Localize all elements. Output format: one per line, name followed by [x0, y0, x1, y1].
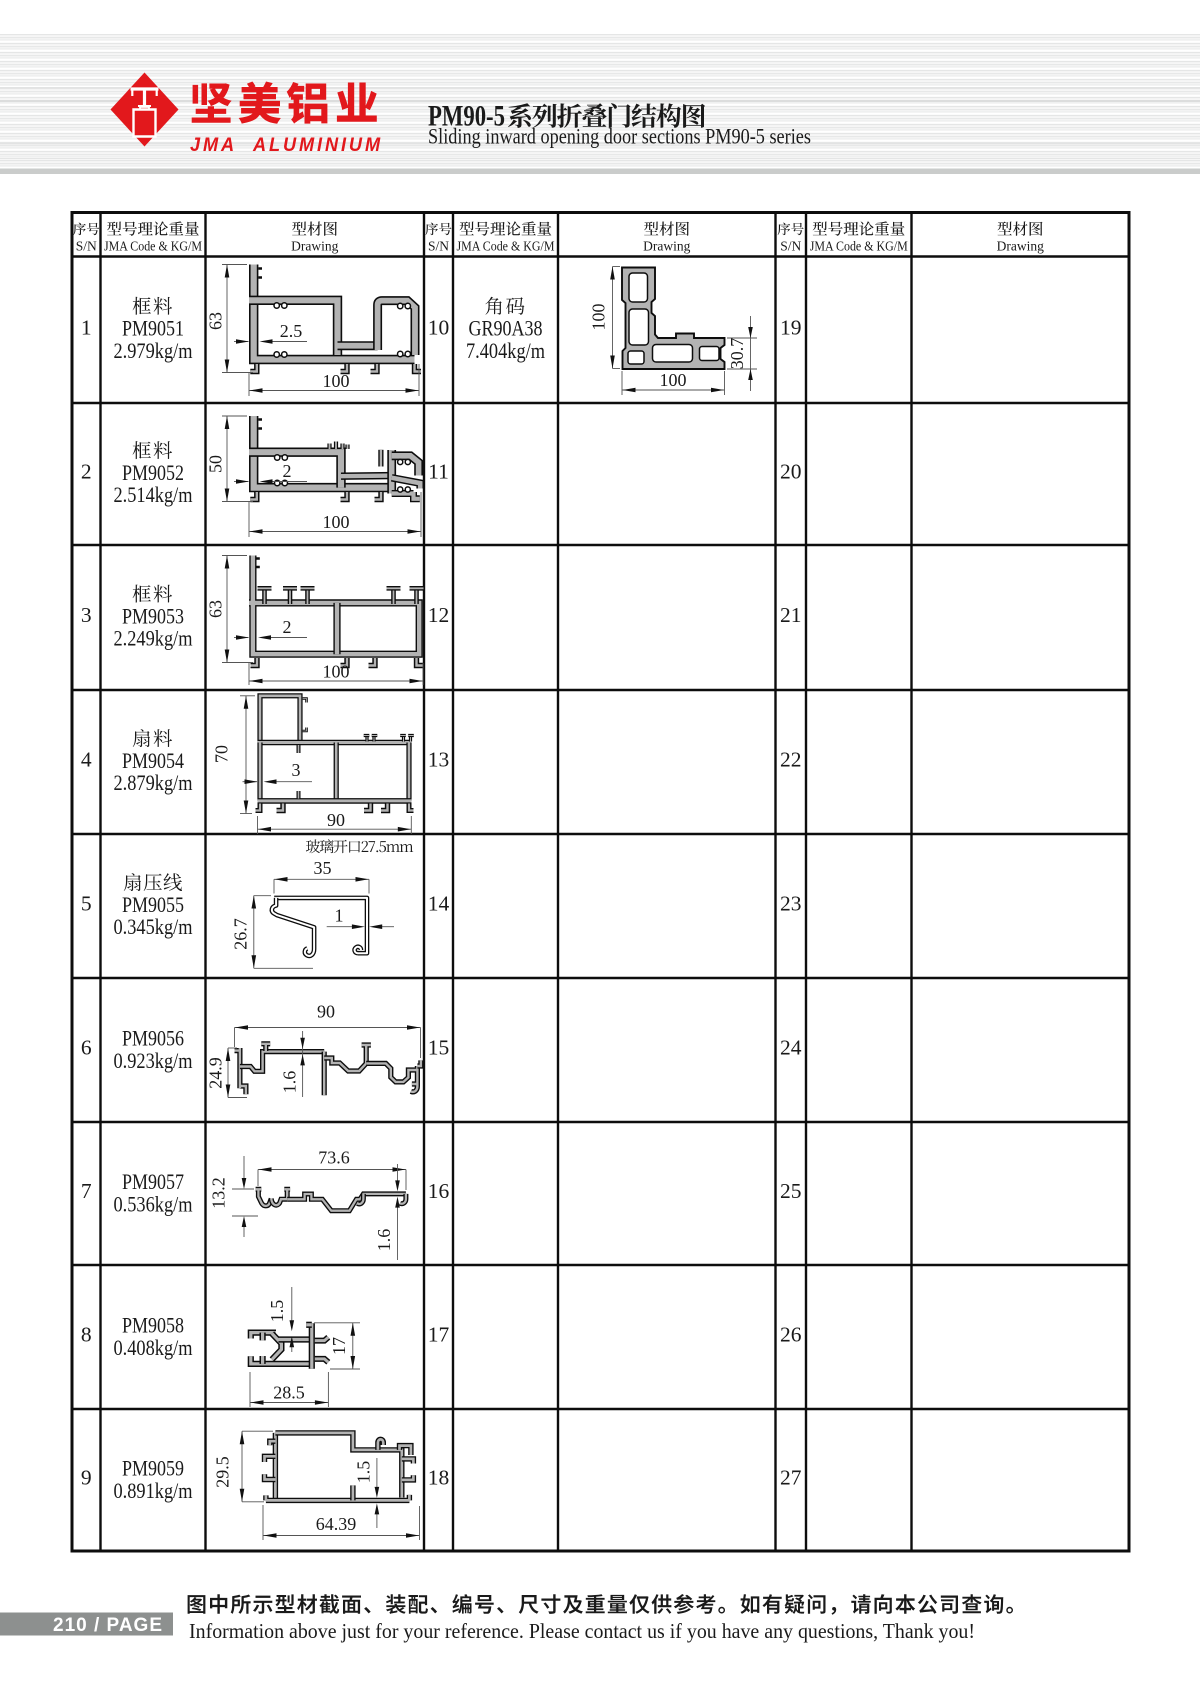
svg-text:90: 90 [317, 1002, 335, 1022]
svg-text:2: 2 [283, 617, 292, 637]
svg-text:9: 9 [81, 1466, 92, 1490]
svg-text:PM9051: PM9051 [122, 316, 184, 341]
svg-text:30.7: 30.7 [727, 338, 747, 370]
svg-text:S/N: S/N [780, 239, 801, 254]
svg-text:73.6: 73.6 [318, 1148, 350, 1168]
svg-text:70: 70 [212, 745, 232, 763]
svg-text:210 / PAGE: 210 / PAGE [53, 1615, 163, 1636]
svg-text:11: 11 [428, 460, 449, 484]
svg-text:1.6: 1.6 [374, 1229, 394, 1252]
svg-text:2.249kg/m: 2.249kg/m [114, 626, 193, 651]
svg-text:13: 13 [428, 748, 450, 772]
svg-text:6: 6 [81, 1036, 92, 1060]
svg-text:S/N: S/N [76, 239, 97, 254]
svg-text:19: 19 [780, 315, 802, 339]
svg-text:16: 16 [428, 1179, 450, 1203]
svg-text:15: 15 [428, 1036, 450, 1060]
svg-text:100: 100 [323, 371, 350, 391]
svg-text:100: 100 [323, 512, 350, 532]
svg-text:Information above just for you: Information above just for your referenc… [189, 1619, 975, 1643]
svg-text:1.5: 1.5 [354, 1461, 374, 1484]
svg-text:10: 10 [428, 315, 450, 339]
svg-text:2.514kg/m: 2.514kg/m [114, 482, 193, 507]
svg-text:50: 50 [206, 455, 226, 473]
svg-text:3: 3 [292, 760, 301, 780]
svg-text:JMA Code & KG/M: JMA Code & KG/M [457, 239, 555, 254]
svg-text:S/N: S/N [428, 239, 449, 254]
svg-text:25: 25 [780, 1179, 802, 1203]
svg-text:PM9059: PM9059 [122, 1456, 184, 1481]
svg-text:63: 63 [206, 312, 226, 330]
svg-text:100: 100 [660, 370, 687, 390]
svg-text:26: 26 [780, 1323, 802, 1347]
svg-text:26.7: 26.7 [231, 918, 251, 950]
svg-text:23: 23 [780, 892, 802, 916]
svg-text:7.404kg/m: 7.404kg/m [466, 338, 545, 363]
svg-text:PM9057: PM9057 [122, 1169, 184, 1194]
svg-text:21: 21 [780, 603, 802, 627]
svg-text:5: 5 [81, 892, 92, 916]
svg-text:Drawing: Drawing [643, 239, 690, 254]
svg-text:0.891kg/m: 0.891kg/m [114, 1478, 193, 1503]
svg-text:100: 100 [589, 304, 609, 331]
svg-text:1: 1 [335, 906, 344, 926]
svg-text:JMA Code & KG/M: JMA Code & KG/M [104, 239, 202, 254]
svg-text:18: 18 [428, 1466, 450, 1490]
svg-text:12: 12 [428, 603, 450, 627]
svg-text:28.5: 28.5 [273, 1383, 305, 1403]
svg-text:27: 27 [780, 1466, 802, 1490]
svg-text:0.923kg/m: 0.923kg/m [114, 1048, 193, 1073]
svg-text:17: 17 [428, 1323, 450, 1347]
svg-text:63: 63 [206, 600, 226, 618]
svg-text:13.2: 13.2 [209, 1177, 229, 1209]
svg-text:35: 35 [314, 858, 332, 878]
svg-text:GR90A38: GR90A38 [469, 316, 543, 341]
svg-text:7: 7 [81, 1179, 92, 1203]
svg-text:Drawing: Drawing [291, 239, 338, 254]
svg-text:0.536kg/m: 0.536kg/m [114, 1192, 193, 1217]
svg-text:PM9056: PM9056 [122, 1026, 184, 1051]
svg-text:0.408kg/m: 0.408kg/m [114, 1335, 193, 1360]
svg-text:Sliding inward opening door se: Sliding inward opening door sections PM9… [428, 124, 811, 149]
svg-text:PM9053: PM9053 [122, 603, 184, 628]
svg-text:2: 2 [283, 461, 292, 481]
svg-text:64.39: 64.39 [316, 1514, 357, 1534]
svg-text:PM9058: PM9058 [122, 1313, 184, 1338]
svg-text:PM9052: PM9052 [122, 460, 184, 485]
svg-text:4: 4 [81, 748, 92, 772]
svg-text:1.5: 1.5 [267, 1300, 287, 1323]
svg-text:0.345kg/m: 0.345kg/m [114, 914, 193, 939]
svg-text:2.879kg/m: 2.879kg/m [114, 770, 193, 795]
svg-text:3: 3 [81, 603, 92, 627]
svg-text:20: 20 [780, 460, 802, 484]
svg-text:2: 2 [81, 460, 92, 484]
svg-text:22: 22 [780, 748, 802, 772]
svg-text:24: 24 [780, 1036, 802, 1060]
svg-text:2.979kg/m: 2.979kg/m [114, 338, 193, 363]
svg-text:Drawing: Drawing [997, 239, 1044, 254]
svg-text:2.5: 2.5 [280, 321, 303, 341]
svg-text:PM9054: PM9054 [122, 748, 184, 773]
svg-text:1.6: 1.6 [280, 1071, 300, 1094]
svg-text:29.5: 29.5 [213, 1456, 233, 1488]
svg-text:JMA ALUMINIUM: JMA ALUMINIUM [190, 134, 383, 156]
svg-text:14: 14 [428, 892, 450, 916]
svg-text:100: 100 [323, 662, 350, 682]
svg-text:1: 1 [81, 315, 92, 339]
svg-text:17: 17 [329, 1337, 349, 1355]
svg-text:JMA Code & KG/M: JMA Code & KG/M [810, 239, 908, 254]
svg-text:PM9055: PM9055 [122, 892, 184, 917]
svg-text:90: 90 [327, 810, 345, 830]
svg-text:8: 8 [81, 1323, 92, 1347]
svg-text:24.9: 24.9 [206, 1057, 226, 1089]
